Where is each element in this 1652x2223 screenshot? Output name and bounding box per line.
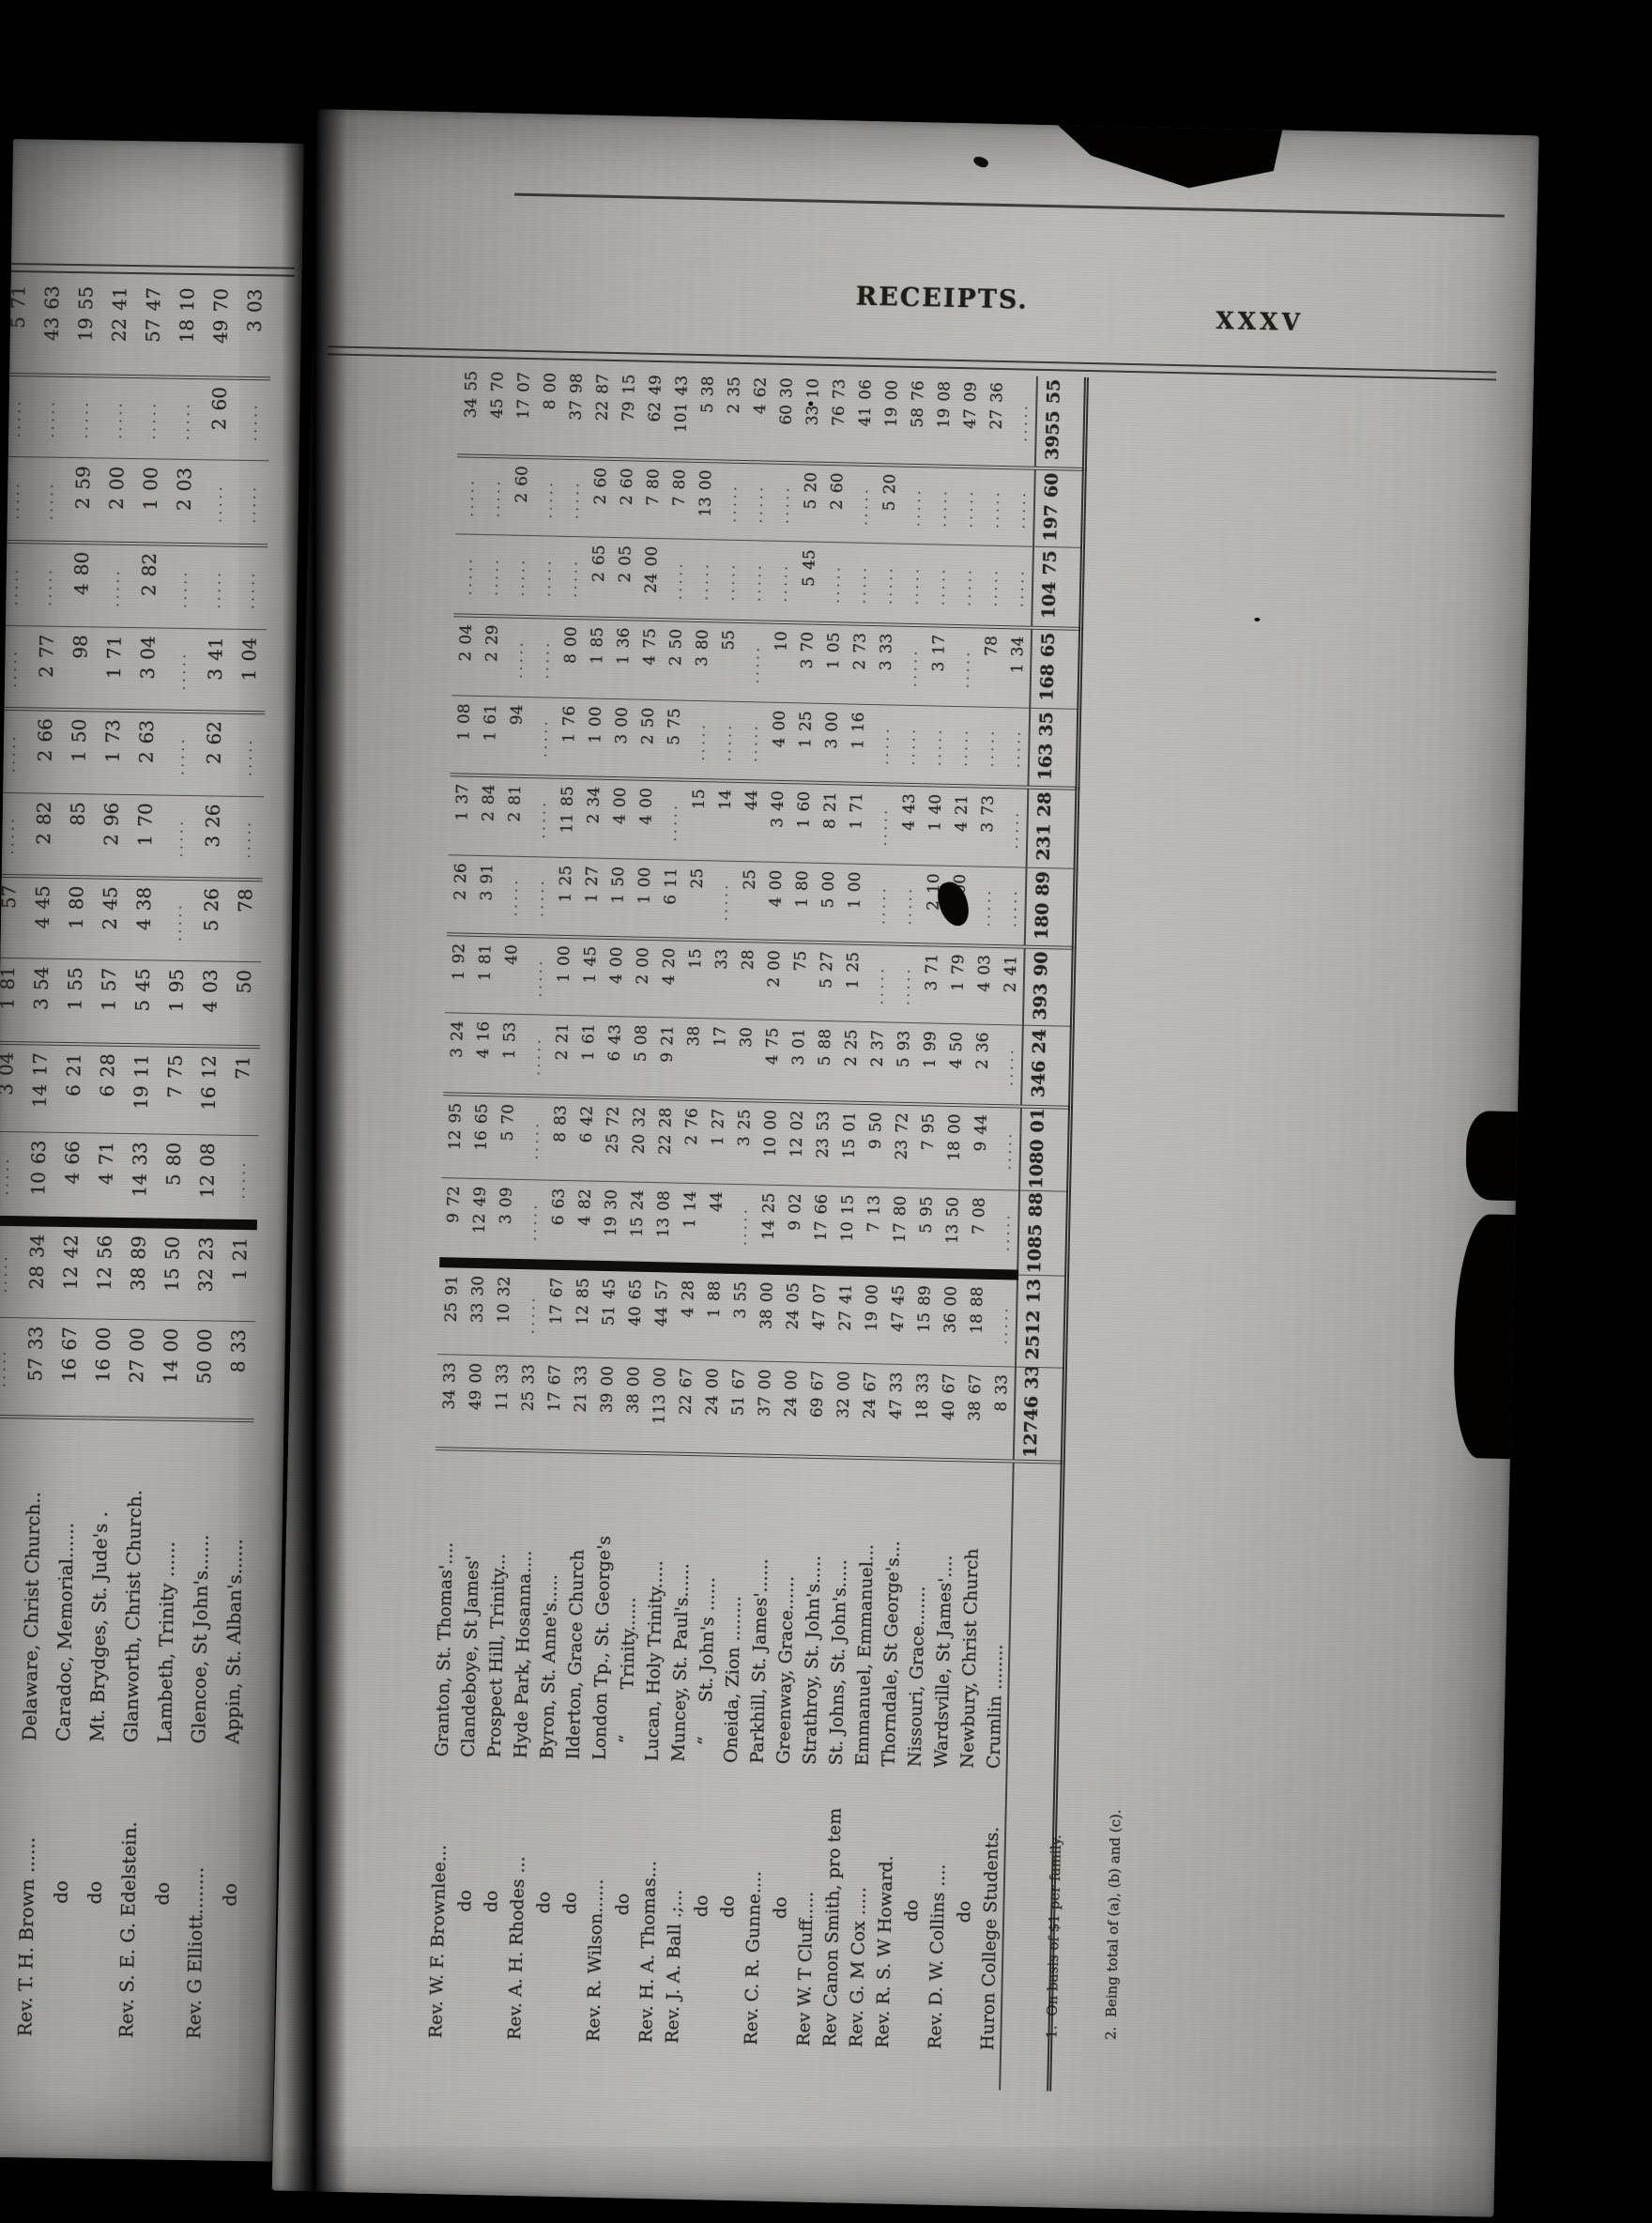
empty-cell-dots: ..... [665, 785, 681, 858]
empty-cell-dots: ..... [722, 544, 739, 618]
dollars: 2 [828, 499, 847, 510]
empty-cell-dots: ..... [522, 1274, 539, 1355]
margin-spacer [579, 2044, 606, 2082]
dollars: 2 [482, 652, 501, 662]
empty-cell-dots: ..... [6, 547, 22, 624]
edge-tear-artifact [1465, 1111, 1523, 1201]
amount-cell: 14 [711, 780, 740, 862]
running-title: RECEIPTS. [855, 283, 1029, 315]
cents: 60 [618, 465, 637, 488]
amount-cell: 621 [55, 1044, 90, 1134]
amount-cell: 277 [28, 626, 63, 710]
dollars: 2 [725, 404, 743, 414]
amount-cell: ..... [865, 943, 894, 1023]
dollars: 57 [142, 318, 164, 343]
total-cell: 108588 [1017, 1191, 1068, 1277]
cents: 49 [646, 372, 665, 395]
dollars: 12 [446, 1129, 465, 1150]
dollars: 16 [197, 1086, 220, 1111]
cents: 88 [1025, 1193, 1047, 1217]
cents: 66 [812, 1190, 832, 1214]
empty-cell-dots: ..... [750, 468, 767, 539]
cents: 37 [453, 780, 473, 804]
dollars: 1 [849, 739, 867, 749]
empty-cell-dots: ..... [897, 950, 914, 1021]
dollars: 1 [452, 810, 471, 820]
amount-cell: 100 [582, 698, 610, 778]
dollars: 4 [763, 1054, 782, 1065]
cents: 63 [40, 282, 63, 309]
dollars: 17 [891, 1222, 910, 1243]
empty-cell-dots: ..... [487, 462, 504, 533]
empty-cell-dots: ..... [748, 545, 765, 619]
dollars: 1 [635, 894, 654, 904]
cents: 00 [562, 623, 582, 647]
amount-cell: 475 [635, 620, 664, 701]
dollars: 19 [130, 1085, 152, 1110]
margin-spacer [842, 2049, 869, 2088]
empty-cell-dots: ..... [994, 1284, 1011, 1365]
dollars: 2 [1001, 982, 1019, 992]
total-cell: 39390 [1023, 947, 1074, 1027]
amount-cell: ..... [162, 712, 197, 797]
dollars: 2 [99, 834, 122, 846]
cents: 00 [598, 1362, 618, 1386]
amount-cell: ..... [848, 543, 876, 624]
empty-cell-dots: ..... [929, 711, 946, 782]
amount-cell: 170 [128, 795, 162, 879]
amount-cell: 1707 [510, 365, 538, 458]
cents: 45 [889, 1281, 909, 1305]
amount-cell: 6249 [641, 368, 669, 461]
margin-spacer [921, 2051, 948, 2090]
amount-cell: 282 [131, 544, 166, 629]
amount-cell: 500 [815, 864, 843, 943]
dollars: 13 [943, 1223, 962, 1244]
cents: 28 [739, 946, 758, 970]
cents: 49 [471, 1183, 491, 1206]
dollars: 6 [605, 1050, 624, 1061]
dollars: 3 [448, 1048, 467, 1058]
cents: 78 [982, 633, 1002, 656]
cents: 57 [0, 882, 21, 909]
cents: 67 [545, 1361, 565, 1385]
dollars: 10 [495, 1303, 513, 1324]
dollars: 5 [917, 1223, 936, 1234]
dollars: 34 [440, 1389, 459, 1410]
dollars: 62 [646, 402, 665, 422]
dollars: 17 [812, 1220, 831, 1241]
empty-cell-dots: ..... [776, 468, 793, 540]
dollars: 51 [600, 1305, 619, 1326]
cents: 67 [940, 1370, 959, 1393]
cents: 20 [880, 470, 900, 494]
total-cell: 395555 [1035, 376, 1086, 469]
empty-cell-dots: ..... [934, 471, 951, 543]
amount-cell: ..... [710, 861, 738, 941]
cents: 95 [919, 1110, 939, 1133]
amount-cell: 15 [681, 940, 710, 1020]
amount-cell: 1285 [569, 1265, 597, 1358]
empty-cell-dots: ..... [5, 630, 21, 705]
dollars: 1 [824, 659, 843, 669]
cents: 60 [591, 464, 611, 487]
amount-cell: ..... [896, 706, 925, 786]
amount-cell: ..... [979, 546, 1007, 628]
dollars: 1 [583, 893, 602, 903]
amount-cell: 420 [655, 939, 683, 1019]
amount-cell: 508 [627, 1017, 655, 1098]
dollars: 12 [59, 1265, 82, 1290]
amount-cell: 5876 [904, 374, 932, 467]
clergy-cell: do [41, 1743, 80, 2040]
cents: 43 [900, 790, 920, 814]
amount-cell: ..... [233, 545, 268, 631]
empty-cell-dots: ..... [3, 714, 19, 791]
amount-cell: 173 [95, 710, 130, 795]
empty-cell-dots: ..... [669, 544, 686, 617]
amount-cell: 333 [872, 624, 900, 706]
amount-cell: 4733 [882, 1364, 910, 1459]
cents: 55 [64, 963, 86, 990]
amount-cell: ..... [1007, 468, 1035, 547]
cents: 72 [604, 1103, 623, 1127]
cents: 41 [204, 634, 226, 661]
amount-cell: ..... [659, 779, 687, 861]
empty-cell-dots: ..... [8, 380, 24, 455]
clergy-cell: do [210, 1746, 249, 2043]
amount-cell: ..... [728, 1185, 757, 1270]
dollars: 33 [803, 405, 822, 425]
dollars: 2 [173, 498, 195, 511]
empty-cell-dots: ..... [238, 801, 254, 876]
amount-cell: 1900 [878, 373, 906, 466]
amount-cell: 10143 [667, 368, 696, 461]
amount-cell: ..... [0, 1318, 19, 1418]
amount-cell: 134 [1003, 627, 1032, 709]
dollars: 43 [40, 316, 63, 341]
empty-cell-dots: ..... [958, 550, 975, 623]
cents: 04 [136, 633, 159, 660]
amount-cell: ..... [744, 462, 772, 542]
cents: 81 [0, 962, 19, 989]
dollars: 3 [136, 667, 159, 680]
amount-cell: 1524 [623, 1182, 651, 1267]
cents: 14 [681, 1188, 700, 1211]
dollars: 2 [638, 734, 657, 744]
cents: 00 [637, 785, 657, 808]
amount-cell: ..... [993, 1106, 1021, 1191]
total-cell: 23128 [1027, 788, 1078, 869]
cents: 21 [953, 791, 972, 815]
cents: 11 [662, 865, 681, 888]
empty-cell-dots: ..... [524, 1185, 541, 1258]
amount-cell: ..... [499, 856, 528, 936]
cents: 72 [893, 1110, 912, 1133]
amount-cell: 309 [492, 1179, 520, 1265]
amount-cell: ..... [870, 705, 898, 785]
dollars: 2 [618, 495, 636, 505]
dollars: 1 [65, 917, 87, 929]
amount-cell: ..... [98, 543, 132, 628]
dollars: 24 [861, 1398, 880, 1418]
amount-cell: ..... [229, 797, 264, 881]
amount-cell: 663 [544, 1181, 573, 1266]
amount-cell: 5000 [187, 1321, 222, 1420]
dollars: 3 [789, 1055, 808, 1066]
cents: 28 [679, 1277, 698, 1300]
cents: 26 [201, 801, 223, 828]
amount-cell: 38 [680, 1019, 708, 1100]
cents: 00 [613, 704, 633, 728]
cents: 28 [1034, 793, 1056, 817]
amount-cell: ..... [0, 626, 30, 710]
dollars: 22 [656, 1134, 675, 1155]
amount-cell: 25 [683, 861, 711, 941]
cents: 50 [866, 1109, 886, 1132]
cents: 42 [59, 1231, 82, 1258]
amount-cell: ..... [892, 944, 920, 1024]
cents: 88 [705, 1278, 725, 1301]
cents: 83 [551, 1102, 571, 1126]
dollars: 4 [575, 1216, 594, 1226]
amount-cell: 4363 [34, 278, 69, 376]
amount-cell: ..... [741, 621, 769, 703]
cents: 89 [127, 1233, 149, 1260]
amount-cell: 1208 [190, 1135, 224, 1225]
cents: 89 [915, 1282, 935, 1306]
empty-cell-dots: ..... [1013, 473, 1030, 544]
amount-cell: 1766 [807, 1187, 835, 1272]
amount-cell: 2032 [625, 1097, 653, 1183]
cents: 30 [737, 1024, 757, 1048]
cents: 05 [784, 1280, 803, 1303]
cents: 70 [498, 1100, 518, 1124]
empty-cell-dots: ..... [1003, 872, 1020, 943]
dollars: 4 [952, 821, 971, 832]
cents: 43 [605, 1020, 625, 1044]
clergy-cell: Rev. T. H. Brown ...... [8, 1742, 46, 2039]
amount-cell: 400 [762, 863, 790, 943]
dollars: 2 [765, 977, 784, 988]
amount-cell: 570 [494, 1095, 522, 1180]
amount-cell: 593 [890, 1023, 918, 1105]
cents: 00 [761, 1107, 781, 1130]
dollars: 12 [788, 1137, 806, 1157]
dollars: 7 [970, 1224, 988, 1234]
empty-cell-dots: ..... [510, 622, 527, 696]
dollars: 2 [479, 811, 497, 821]
margin-spacer [41, 2039, 76, 2079]
cents: 56 [93, 1232, 115, 1259]
amount-cell: 3200 [830, 1363, 858, 1458]
empty-cell-dots: ..... [1014, 379, 1031, 464]
amount-cell: 1015 [834, 1187, 862, 1272]
ink-speck [972, 154, 990, 169]
amount-cell: 266 [27, 709, 62, 794]
cents: 10 [803, 375, 823, 398]
cents: 40 [502, 942, 522, 965]
cents: 59 [71, 463, 94, 490]
cents: 00 [703, 1365, 723, 1388]
amount-cell: 4457 [648, 1267, 676, 1360]
dollars: 3 [497, 1214, 515, 1224]
dollars: 3 [768, 818, 787, 828]
cents: 33 [572, 1362, 591, 1386]
dollars: 2 [591, 494, 610, 504]
dollars: 18 [176, 319, 198, 344]
amount-cell: 281 [501, 775, 529, 857]
cents: 00 [587, 703, 606, 727]
empty-cell-dots: ..... [76, 381, 92, 456]
dollars: 2 [32, 833, 54, 845]
dollars: 1 [925, 820, 944, 831]
cents: 28 [96, 1050, 118, 1078]
dollars: 6 [662, 895, 681, 905]
amount-cell: 2533 [514, 1357, 543, 1451]
cents: 38 [684, 1022, 704, 1046]
dollars: 13 [654, 1218, 673, 1238]
margin-spacer [711, 2047, 738, 2085]
dollars: 1 [681, 1218, 699, 1228]
amount-cell: 2834 [19, 1221, 54, 1319]
cents: 75 [1039, 551, 1061, 575]
cents: 93 [895, 1027, 914, 1050]
amount-cell: 466 [54, 1133, 89, 1223]
amount-cell: 150 [61, 710, 96, 795]
amount-cell: 181 [471, 935, 499, 1015]
dollars: 2 [207, 418, 230, 430]
amount-cell: ..... [168, 377, 203, 461]
amount-cell: 94 [503, 697, 531, 776]
dollars: 2 [512, 493, 531, 503]
cents: 71 [7, 282, 29, 309]
dollars: 15 [161, 1267, 183, 1292]
dollars: 7 [644, 496, 663, 506]
empty-cell-dots: ..... [715, 866, 732, 937]
page-folio: XXXV [1216, 307, 1304, 336]
empty-cell-dots: ..... [512, 540, 528, 613]
cents: 33 [1021, 1368, 1043, 1390]
empty-cell-dots: ..... [827, 546, 844, 620]
cents: 00 [635, 864, 655, 887]
amount-cell: 44 [702, 1184, 730, 1269]
amount-cell: 611 [657, 860, 685, 940]
dollars: 2 [456, 651, 475, 661]
dollars: 1 [559, 732, 578, 743]
cents: 98 [69, 632, 91, 659]
empty-cell-dots: ..... [696, 544, 712, 617]
amount-cell: 1612 [191, 1046, 225, 1136]
dollars: 3 [731, 1308, 750, 1318]
empty-cell-dots: ..... [175, 550, 191, 627]
cents: 33 [129, 1139, 151, 1166]
cents: 00 [467, 1359, 486, 1383]
amount-cell: ..... [560, 458, 589, 538]
cents: 75 [665, 705, 685, 728]
empty-cell-dots: ..... [208, 550, 224, 627]
amount-cell: ..... [975, 707, 1003, 787]
amount-cell: 370 [793, 622, 821, 704]
amount-cell: ..... [716, 540, 744, 621]
empty-cell-dots: ..... [242, 551, 258, 628]
cents: 70 [209, 284, 232, 312]
cents: 02 [786, 1190, 805, 1214]
cents: 63 [27, 1137, 50, 1164]
amount-cell: 304 [130, 628, 164, 712]
margin-spacer [109, 2040, 144, 2080]
empty-cell-dots: ..... [536, 622, 553, 696]
dollars: 1 [133, 835, 156, 847]
empty-cell-dots: ..... [566, 464, 583, 535]
amount-cell: 195 [159, 961, 193, 1047]
dollars: 50 [192, 1360, 215, 1385]
dollars: 37 [567, 400, 586, 421]
amount-cell: 78 [977, 627, 1005, 709]
amount-cell: 520 [797, 463, 825, 543]
cents: 71 [231, 1052, 253, 1080]
cents: 10 [176, 284, 198, 312]
cents: 24 [448, 1018, 467, 1041]
margin-spacer [789, 2047, 817, 2086]
dollars: 2512 [1022, 1310, 1044, 1359]
amount-cell: 944 [967, 1105, 995, 1190]
amount-cell: 225 [837, 1021, 865, 1103]
empty-cell-dots: ..... [978, 871, 995, 943]
margin-spacer [684, 2046, 711, 2084]
amount-cell: ..... [981, 468, 1009, 547]
margin-spacer [632, 2045, 659, 2083]
amount-cell: 1000 [757, 1101, 785, 1187]
dollars: 1 [614, 654, 633, 665]
amount-cell: 1308 [650, 1183, 678, 1268]
dollars: 7 [163, 1086, 186, 1098]
amount-cell: 526 [193, 879, 228, 962]
amount-cell: 200 [99, 458, 133, 544]
cents: 43 [672, 372, 692, 395]
cents: 67 [808, 1367, 828, 1390]
dollars: 1 [139, 498, 161, 511]
cents: 71 [848, 790, 867, 813]
church-cell: Glanworth, Christ Church. [114, 1418, 152, 1745]
empty-cell-dots: ..... [1001, 1030, 1017, 1103]
cents: 16 [474, 1018, 494, 1041]
dollars: 113 [650, 1394, 670, 1425]
amount-cell: ..... [134, 376, 169, 460]
amount-cell: 2400 [637, 539, 665, 621]
empty-cell-dots: ..... [39, 548, 55, 625]
margin-spacer [973, 2052, 1001, 2091]
amount-cell: 642 [573, 1096, 601, 1182]
dollars: 5 [200, 919, 222, 931]
amount-cell: 199 [916, 1023, 944, 1105]
amount-cell: 260 [587, 458, 615, 538]
cents: 95 [917, 1193, 937, 1217]
amount-cell: 527 [813, 943, 841, 1022]
cents: 60 [795, 788, 815, 811]
amount-cell: 325 [730, 1100, 758, 1186]
dollars: 2 [35, 666, 57, 678]
cents: 53 [500, 1019, 520, 1042]
dollars: 104 [1038, 581, 1060, 619]
amount-cell: 324 [443, 1013, 471, 1095]
cents: 50 [161, 1233, 183, 1260]
cents: 41 [108, 284, 130, 311]
dollars: 5 [802, 498, 820, 509]
cents: 60 [1041, 474, 1063, 498]
cents: 08 [970, 1194, 989, 1218]
amount-cell: 1417 [22, 1043, 56, 1133]
